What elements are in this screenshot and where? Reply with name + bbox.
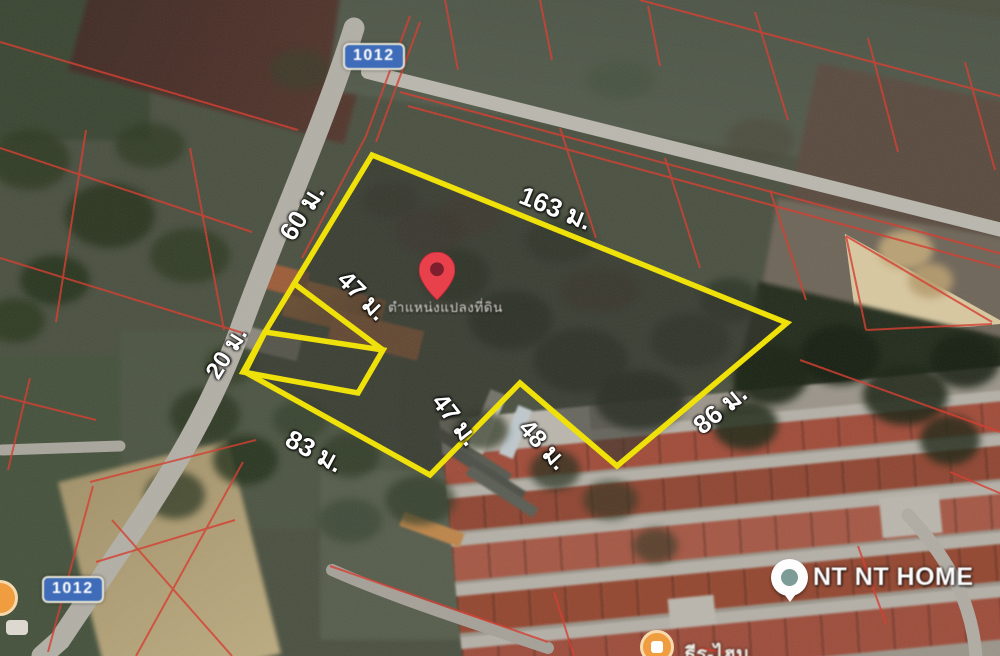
white-blob [6, 620, 28, 635]
nt-home-poi-dot [781, 569, 798, 586]
location-pin-icon [419, 252, 455, 300]
image-noise [0, 0, 1000, 656]
shop-poi-glyph [651, 641, 663, 653]
shop-poi-label-partial: ธีร-ไฮม [684, 638, 749, 656]
route-badge-1012-top: 1012 [343, 43, 405, 70]
pin-label: ตำแหน่งแปลงที่ดิน [388, 296, 503, 318]
nt-home-label: NT NT HOME [813, 563, 974, 592]
map-overlay-graphics [0, 0, 1000, 656]
route-badge-1012-bottom: 1012 [42, 576, 104, 603]
nt-home-poi-pointer [784, 594, 796, 602]
satellite-map: 163 ม. 60 ม. 47 ม. 20 ม. 83 ม. 47 ม. 48 … [0, 0, 1000, 656]
